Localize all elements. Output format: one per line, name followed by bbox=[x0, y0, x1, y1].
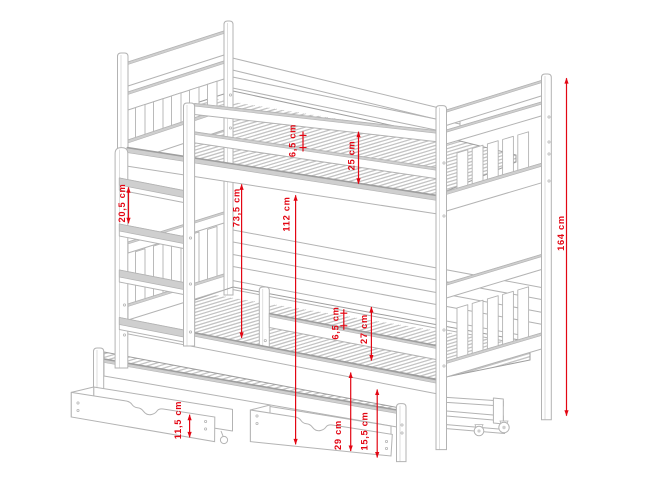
svg-text:20,5 cm: 20,5 cm bbox=[117, 183, 127, 222]
svg-text:11,5 cm: 11,5 cm bbox=[173, 401, 183, 440]
svg-text:73,5 cm: 73,5 cm bbox=[231, 188, 241, 227]
svg-text:29 cm: 29 cm bbox=[333, 420, 343, 450]
svg-text:27 cm: 27 cm bbox=[359, 314, 369, 344]
svg-text:112 cm: 112 cm bbox=[281, 196, 291, 231]
svg-text:164 cm: 164 cm bbox=[556, 215, 566, 251]
svg-text:25 cm: 25 cm bbox=[347, 140, 357, 170]
svg-text:15,5 cm: 15,5 cm bbox=[360, 411, 370, 450]
svg-text:6,5 cm: 6,5 cm bbox=[287, 124, 297, 157]
svg-text:6,5 cm: 6,5 cm bbox=[331, 306, 341, 339]
